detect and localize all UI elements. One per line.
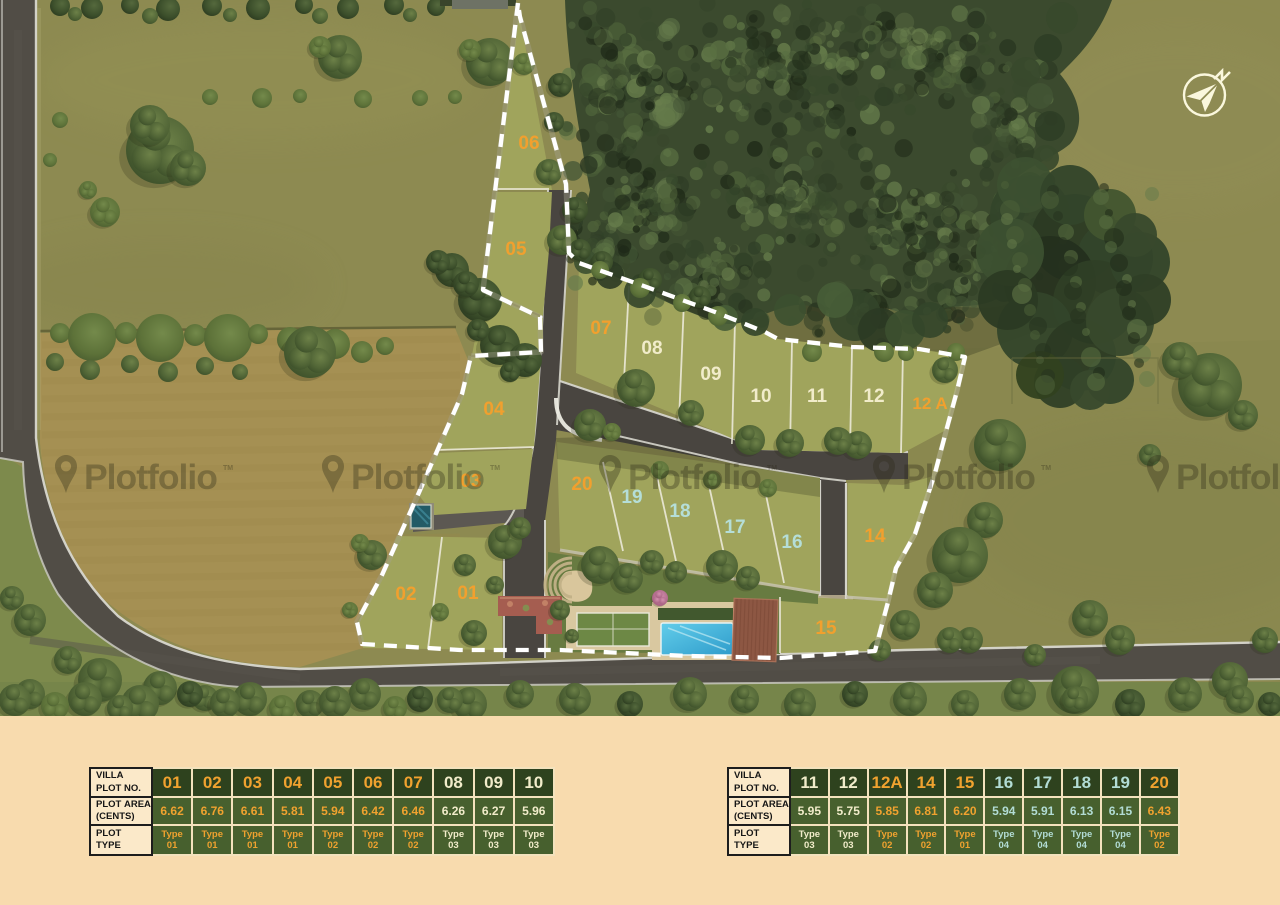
svg-text:14: 14	[864, 526, 886, 547]
svg-text:10: 10	[750, 386, 771, 407]
svg-text:05: 05	[505, 239, 527, 260]
svg-text:01: 01	[457, 583, 479, 604]
svg-text:Plotfolio: Plotfolio	[1176, 457, 1280, 497]
svg-text:Plotfolio: Plotfolio	[351, 457, 484, 497]
svg-text:18: 18	[669, 501, 690, 522]
svg-text:17: 17	[724, 517, 745, 538]
svg-text:Plotfolio: Plotfolio	[628, 457, 761, 497]
svg-text:TM: TM	[223, 465, 233, 472]
svg-text:09: 09	[700, 364, 721, 385]
svg-text:07: 07	[590, 318, 611, 339]
svg-text:Plotfolio: Plotfolio	[84, 457, 217, 497]
svg-text:08: 08	[641, 338, 662, 359]
svg-text:TM: TM	[490, 465, 500, 472]
svg-text:02: 02	[395, 584, 416, 605]
svg-text:04: 04	[483, 399, 505, 420]
svg-text:12 A: 12 A	[912, 394, 947, 413]
svg-text:06: 06	[518, 133, 539, 154]
svg-text:12: 12	[863, 386, 884, 407]
svg-text:15: 15	[815, 618, 837, 639]
svg-text:20: 20	[571, 474, 592, 495]
svg-text:Plotfolio: Plotfolio	[902, 457, 1035, 497]
svg-text:11: 11	[807, 386, 828, 407]
svg-text:TM: TM	[1041, 465, 1051, 472]
svg-text:16: 16	[781, 532, 802, 553]
svg-text:TM: TM	[767, 465, 777, 472]
